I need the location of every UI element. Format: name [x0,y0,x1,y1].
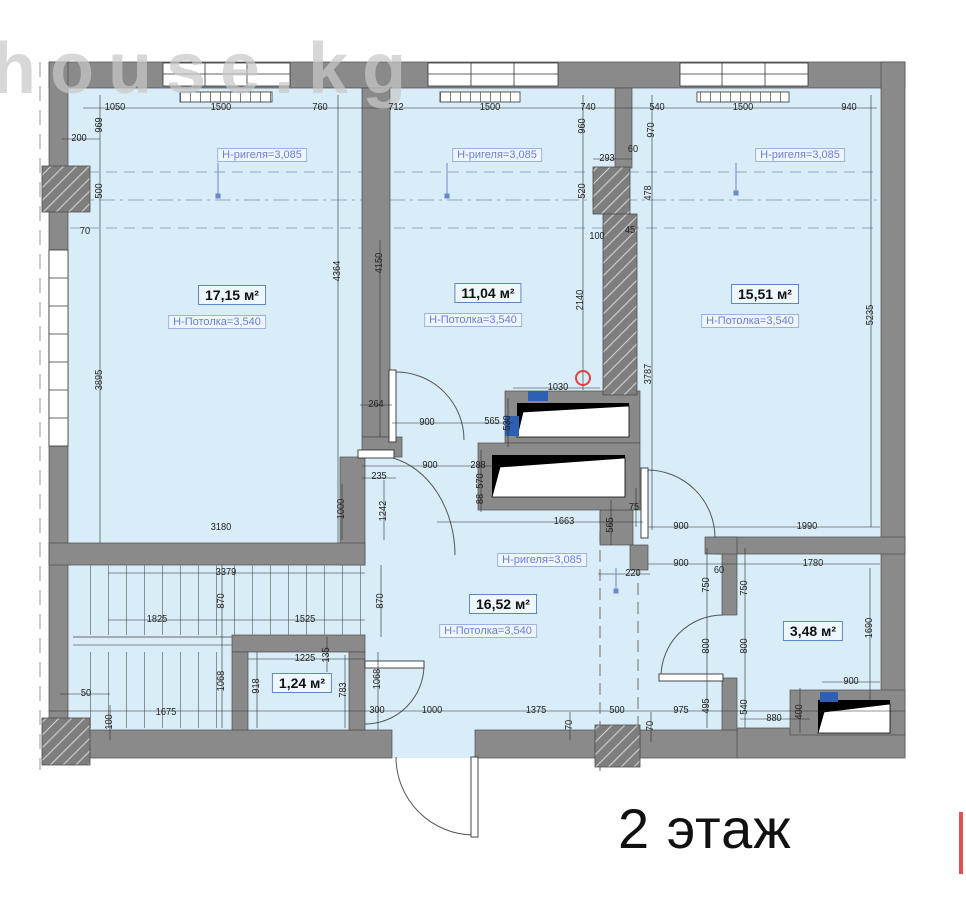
dimension-label: 969 [95,117,105,132]
dimension-label: 400 [795,704,805,719]
dimension-label: 960 [578,118,588,133]
dimension-label: 2140 [576,290,586,310]
dimension-label: 520 [578,183,588,198]
dimension-label: 500 [95,183,105,198]
dimension-label: 220 [625,569,640,579]
dimension-label: 3895 [95,370,105,390]
dimension-label: 900 [673,559,688,569]
dimension-label: 3379 [216,568,236,578]
dimension-label: 3787 [644,364,654,384]
dimension-label: 300 [369,706,384,716]
ceiling-height-label: Н-Потолка=3,540 [168,315,266,329]
room-area-label: 1,24 м² [272,673,332,693]
dimension-label: 60 [714,566,724,576]
dimension-label: 970 [647,122,657,137]
floor-title: 2 этаж [618,796,792,861]
dimension-label: 100 [105,714,115,729]
dimension-label: 900 [673,522,688,532]
dimension-label: 70 [80,227,90,237]
dimension-label: 293 [599,154,614,164]
dimension-label: 880 [766,714,781,724]
dimension-label: 565 [484,417,499,427]
dimension-label: 3180 [211,523,231,533]
dimension-label: 4150 [375,253,385,273]
dimension-label: 530 [503,415,513,430]
beam-height-label: Н-ригеля=3,085 [497,553,587,567]
dimension-label: 1663 [554,517,574,527]
dimension-label: 750 [702,577,712,592]
room-area-label: 11,04 м² [454,283,521,303]
floorplan-page: house.kg 1050150076071215007405401500940… [0,0,966,900]
beam-height-label: Н-ригеля=3,085 [217,148,307,162]
dimension-label: 1068 [373,669,383,689]
dimension-label: 800 [702,638,712,653]
annotation-layer: 1050150076071215007405401500940969200500… [0,0,966,900]
dimension-label: 900 [422,461,437,471]
dimension-label: 783 [339,682,349,697]
dimension-label: 712 [388,103,403,113]
ceiling-height-label: Н-Потолка=3,540 [424,313,522,327]
dimension-label: 1225 [295,654,315,664]
dimension-label: 45 [625,226,635,236]
dimension-label: 4364 [333,261,343,281]
beam-height-label: Н-ригеля=3,085 [755,148,845,162]
dimension-label: 495 [702,698,712,713]
dimension-label: 1242 [379,501,389,521]
dimension-label: 288 [470,461,485,471]
dimension-label: 100 [589,232,604,242]
dimension-label: 50 [81,689,91,699]
beam-height-label: Н-ригеля=3,085 [452,148,542,162]
dimension-label: 1690 [865,618,875,638]
dimension-label: 1500 [733,103,753,113]
dimension-label: 540 [649,103,664,113]
dimension-label: 500 [609,706,624,716]
dimension-label: 900 [419,418,434,428]
dimension-label: 760 [312,103,327,113]
dimension-label: 5235 [866,305,876,325]
dimension-label: 1500 [211,103,231,113]
dimension-label: 870 [376,593,386,608]
dimension-label: 1990 [797,522,817,532]
dimension-label: 235 [371,472,386,482]
dimension-label: 88 [476,494,486,504]
dimension-label: 1375 [526,706,546,716]
dimension-label: 900 [843,677,858,687]
dimension-label: 1050 [105,103,125,113]
dimension-label: 1675 [156,708,176,718]
room-area-label: 3,48 м² [783,621,843,641]
dimension-label: 740 [580,103,595,113]
ceiling-height-label: Н-Потолка=3,540 [439,624,537,638]
dimension-label: 200 [71,134,86,144]
dimension-label: 70 [646,721,656,731]
dimension-label: 870 [217,593,227,608]
dimension-label: 565 [606,517,616,532]
dimension-label: 750 [740,580,750,595]
ceiling-height-label: Н-Потолка=3,540 [701,314,799,328]
dimension-label: 70 [565,720,575,730]
room-area-label: 15,51 м² [731,284,799,304]
dimension-label: 478 [644,185,654,200]
room-area-label: 16,52 м² [469,594,537,614]
dimension-label: 135 [322,647,332,662]
dimension-label: 1000 [422,706,442,716]
dimension-label: 1000 [337,499,347,519]
dimension-label: 800 [740,638,750,653]
dimension-label: 540 [740,699,750,714]
dimension-label: 1500 [480,103,500,113]
dimension-label: 60 [628,145,638,155]
room-area-label: 17,15 м² [198,285,266,305]
dimension-label: 1525 [295,615,315,625]
dimension-label: 918 [252,678,262,693]
dimension-label: 1068 [217,671,227,691]
dimension-label: 75 [629,503,639,513]
dimension-label: 940 [841,103,856,113]
dimension-label: 1030 [548,383,568,393]
dimension-label: 570 [476,473,486,488]
dimension-label: 1780 [803,559,823,569]
dimension-label: 975 [673,706,688,716]
dimension-label: 264 [368,400,383,410]
dimension-label: 1825 [147,615,167,625]
